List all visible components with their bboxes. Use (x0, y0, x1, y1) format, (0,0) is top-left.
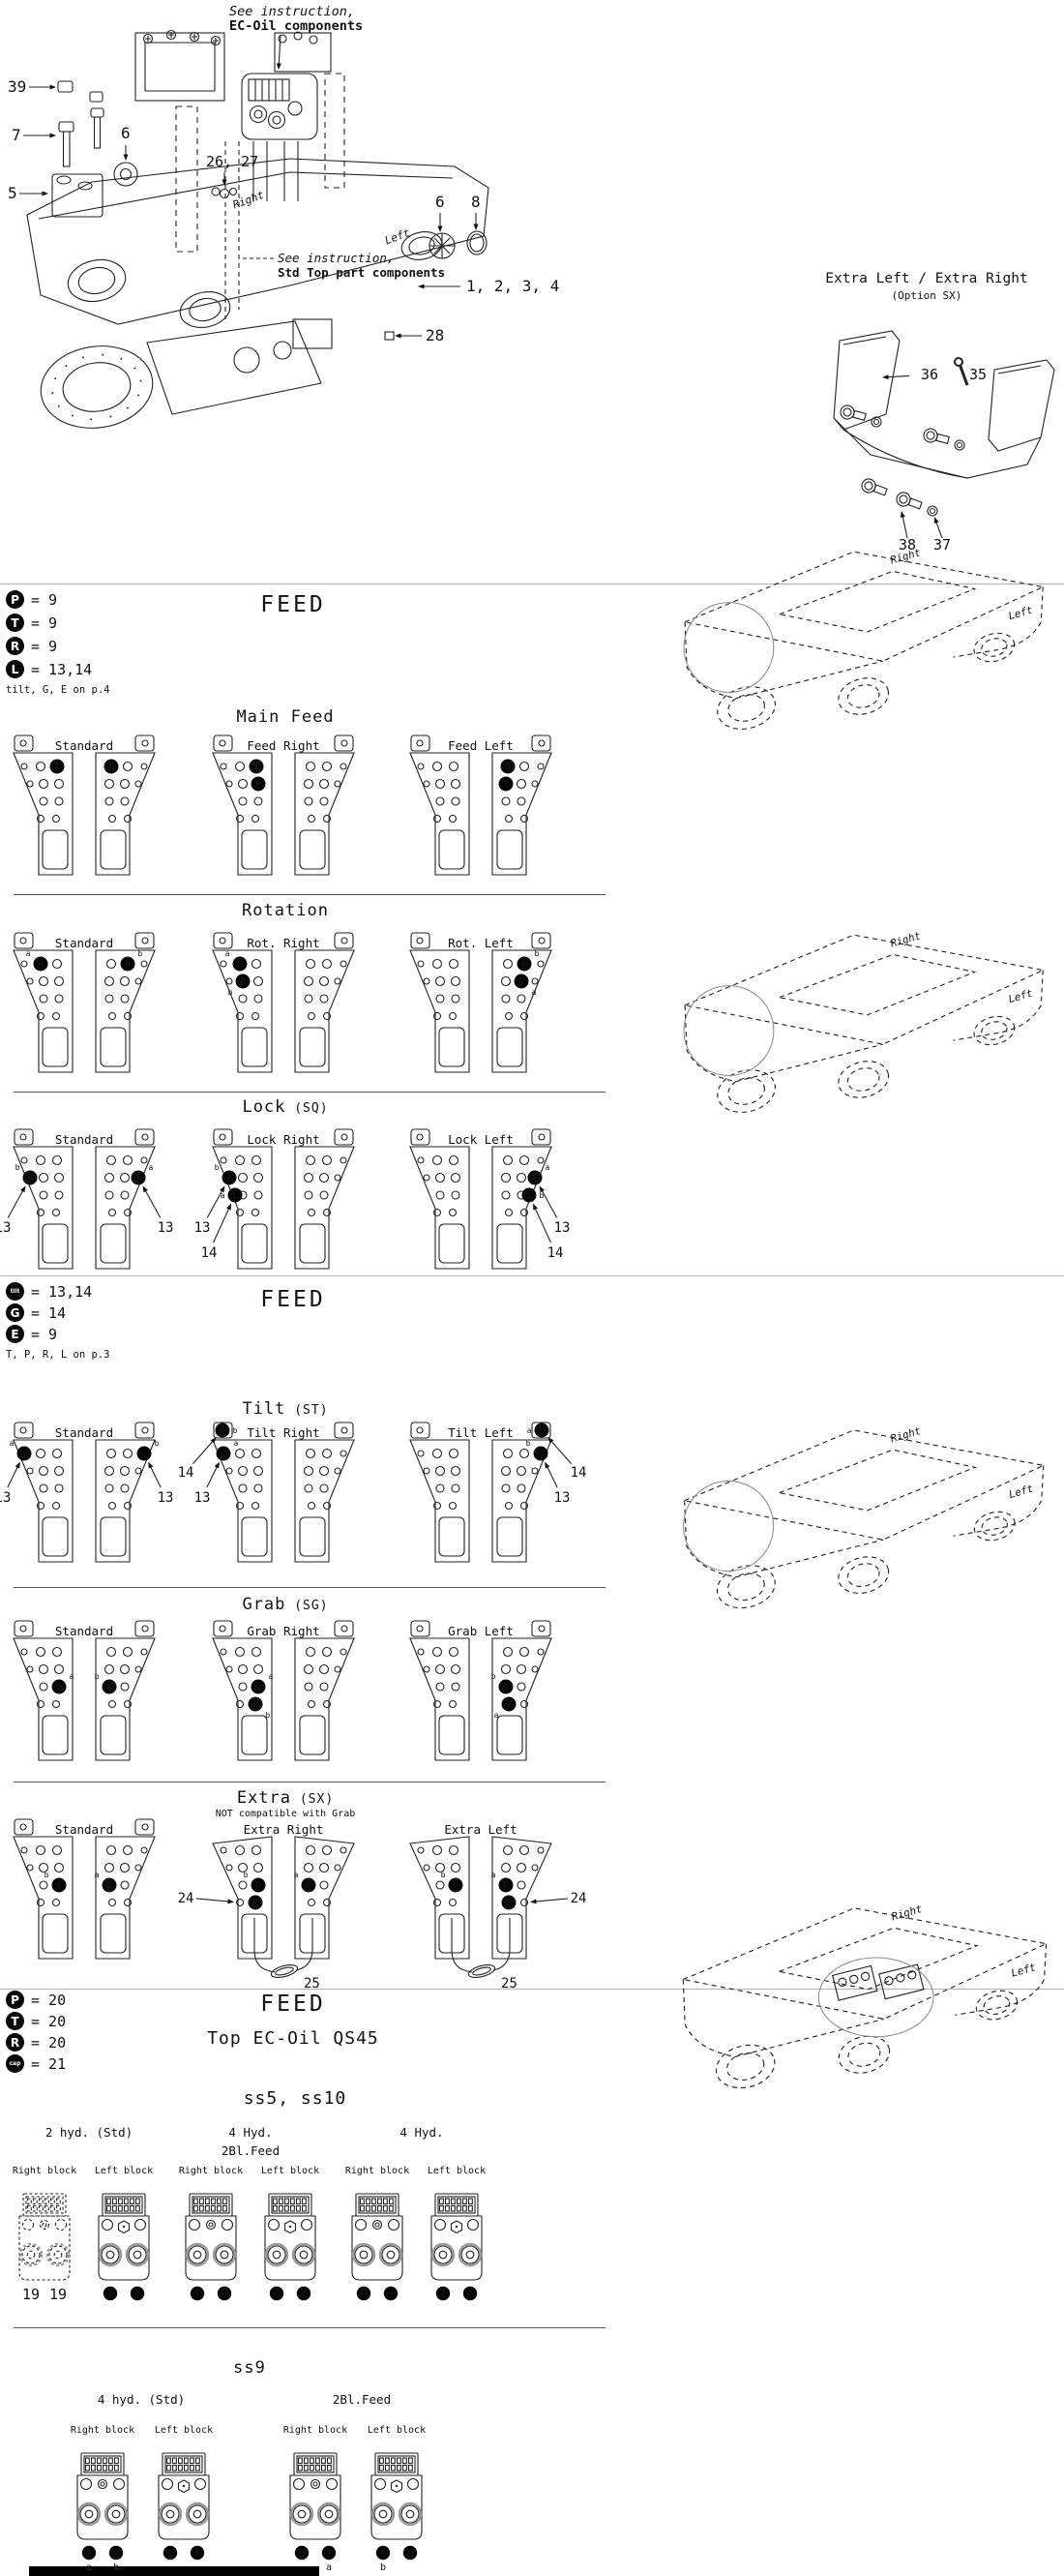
port-hole (40, 1484, 47, 1492)
arrowhead (545, 1462, 549, 1469)
main-port (295, 2246, 312, 2263)
port-hole (504, 1156, 513, 1165)
pin (40, 2199, 44, 2204)
plate-slot (497, 1517, 522, 1556)
block-body (352, 2216, 402, 2280)
tab-hole (142, 938, 148, 944)
main-port-inner (387, 2251, 395, 2259)
main-port-ring (266, 2244, 287, 2265)
right-plate: GbGa (491, 1621, 551, 1760)
pilot-port (114, 2479, 125, 2490)
tab-hole (142, 1134, 148, 1140)
leader-line (150, 1466, 161, 1487)
main-port (102, 2246, 119, 2263)
section-title-mainFeed: Main Feed (0, 707, 571, 727)
pin (179, 2466, 183, 2471)
lug-ring (712, 2039, 780, 2094)
port-sub-label: a (234, 1439, 239, 1448)
port-hole (239, 780, 248, 789)
port-hole (21, 764, 27, 769)
arrowhead (15, 1462, 20, 1469)
pin (409, 2466, 413, 2471)
port-sub-label: b (215, 1163, 220, 1172)
circle (839, 404, 855, 420)
port-hole (418, 961, 424, 967)
port-hole (124, 1648, 133, 1657)
port-hole (141, 1847, 147, 1853)
port-badge-label: P (194, 2549, 199, 2559)
right-plate: La13 (96, 1129, 173, 1269)
frame-outline (845, 1560, 882, 1589)
port-hole (436, 1881, 444, 1889)
washer-inner (874, 420, 879, 425)
port-marker-label: L (232, 1190, 238, 1201)
pin (179, 2458, 183, 2464)
port-hole (305, 1665, 313, 1674)
plate-tab (335, 933, 353, 948)
port-hole (226, 978, 232, 984)
port-hole (124, 1450, 133, 1458)
callout-number: 14 (178, 1465, 194, 1481)
lug-ring (177, 287, 233, 332)
plate-pair: Lb13La14 (200, 1127, 367, 1313)
port-hole (452, 1683, 459, 1691)
port-hole (221, 764, 226, 769)
tab-hole (142, 1626, 148, 1632)
port-hole (323, 1156, 332, 1165)
main-port (434, 2246, 452, 2263)
port-hole (517, 1864, 526, 1872)
port-hole (452, 1174, 460, 1183)
callout-number: 13 (0, 1490, 11, 1506)
port-marker-label: tilt (19, 1452, 30, 1456)
port-hole (53, 1900, 60, 1906)
plate-pair: GaGb (1, 1619, 167, 1805)
port-hole (40, 1467, 48, 1476)
pin (51, 2199, 55, 2204)
port-hole (55, 995, 63, 1003)
port-hole (105, 780, 114, 789)
port-hole (239, 1467, 248, 1476)
arrowhead (50, 85, 57, 90)
plate-tab (214, 933, 232, 948)
port-hole (239, 995, 247, 1003)
port-hole (450, 816, 457, 823)
screw-cross (145, 36, 151, 42)
port-hole (226, 781, 232, 787)
port-marker-label: tilt (537, 1428, 547, 1433)
port-hole (55, 977, 64, 986)
pin (458, 2206, 461, 2212)
port-hole (252, 960, 261, 969)
port-hole (450, 1648, 458, 1657)
arrowhead (277, 63, 281, 70)
plate-pair: EbEaE2425 (398, 1817, 564, 2003)
port-badge-cap: cap (6, 2054, 24, 2073)
port-badge-label: R (113, 2549, 119, 2559)
center-port-inner (43, 2223, 46, 2227)
plate-slot (101, 1517, 126, 1556)
main-port (80, 2505, 98, 2523)
plate-slot (300, 1028, 325, 1066)
left-side-label: Left (1007, 605, 1034, 623)
pin (285, 2199, 289, 2204)
plate-pair: La13Lb14 (398, 1127, 564, 1313)
port-hole (307, 1450, 315, 1458)
lug-ring (64, 255, 129, 307)
pin (458, 2199, 461, 2204)
port-sub-label: b (155, 1439, 160, 1448)
pin (390, 2206, 394, 2212)
pin (206, 2206, 210, 2212)
plate-tab (135, 1621, 154, 1636)
main-port (320, 2505, 338, 2523)
plate-slot (101, 1914, 126, 1953)
plate-pair: RaRb (200, 931, 367, 1117)
port-badge-E: E (6, 1325, 24, 1343)
plate-pair: tilta13tiltb13 (1, 1421, 167, 1606)
port-hole (254, 1665, 263, 1674)
main-port-inner (466, 2251, 474, 2259)
port-hole (55, 1191, 63, 1199)
leader-line (8, 1466, 18, 1487)
left-side-label: Left (1010, 1961, 1037, 1980)
plate-pair: TP (200, 734, 367, 919)
callout-number: 1, 2, 3, 4 (466, 277, 559, 295)
port-marker-label: E (106, 1880, 112, 1891)
block-label: Right block (1, 2166, 88, 2176)
right-plate: EaE24 (491, 1837, 587, 1959)
port-hole (538, 1157, 544, 1163)
left-plate: TP (213, 735, 272, 875)
port-hole (436, 1174, 445, 1183)
port-hole (55, 1864, 64, 1872)
frame-outline (685, 935, 1043, 1044)
port-sub-label: b (113, 2562, 119, 2573)
port-hole (532, 781, 538, 787)
port-hole (107, 960, 116, 969)
block-label: Left block (140, 2425, 227, 2436)
right-plate: Ea (95, 1819, 155, 1959)
port-hole (37, 763, 45, 771)
port-hole (53, 1210, 60, 1216)
plate-slot (497, 1028, 522, 1066)
port-hole (450, 1503, 457, 1510)
tab-hole (341, 1134, 347, 1140)
port-hole (254, 977, 263, 986)
pilot-port (302, 2220, 312, 2231)
section-title-text: Lock (242, 1097, 285, 1117)
callout-number: 37 (933, 536, 951, 554)
port-badge-label: P (407, 2549, 412, 2559)
frame-outline (780, 1450, 975, 1511)
plate-tab (335, 1423, 353, 1438)
arrowhead (901, 511, 905, 518)
legend-p5: P = 20 T = 20 R = 20 cap = 21 (6, 1991, 66, 2076)
pin (107, 2206, 111, 2212)
port-sub-label: a (546, 1163, 550, 1172)
plate-slot (101, 830, 126, 869)
pin (280, 2206, 283, 2212)
main-port-inner (379, 2510, 387, 2518)
bolt-shaft (64, 132, 71, 166)
port-hole (135, 1468, 141, 1474)
port-hole (121, 1665, 130, 1674)
main-port (401, 2505, 419, 2523)
tab-hole (20, 1824, 26, 1830)
frame-illustration: RightLeft (631, 1409, 1061, 1637)
port-sub-label: b (15, 1163, 20, 1172)
port-hole (520, 1450, 529, 1458)
port-hole (436, 780, 445, 789)
arrowhead (474, 225, 479, 231)
washer (928, 506, 937, 516)
plate-tab (411, 933, 429, 948)
port-hole (307, 763, 315, 771)
section-title-text: Rotation (242, 901, 329, 920)
port-hole (141, 961, 147, 967)
guard-edge (998, 366, 1041, 374)
center-port-inner (209, 2223, 213, 2227)
main-port-ring (353, 2244, 374, 2265)
block-hole (57, 176, 71, 184)
port-hole (254, 995, 262, 1003)
pin (194, 2206, 198, 2212)
plate-slot (242, 1028, 267, 1066)
port-hole (105, 995, 113, 1003)
pin (115, 2458, 119, 2464)
port-hole (135, 1666, 141, 1672)
feed-subtitle-p5: Top EC-Oil QS45 (0, 2028, 586, 2049)
port-hole (37, 1450, 45, 1458)
lug-ring (835, 1056, 893, 1102)
arrowhead (438, 226, 443, 233)
port-sub-label: a (95, 1871, 100, 1879)
highlight-ellipse (818, 1958, 933, 2037)
section-title-suffix: (ST) (285, 1403, 328, 1418)
tab-hole (341, 1626, 347, 1632)
arrowhead (418, 285, 425, 289)
port-hole (109, 1701, 116, 1708)
gear-tooth (127, 406, 129, 408)
center-port-inner (375, 2223, 379, 2227)
port-hole (450, 1450, 458, 1458)
port-hole (141, 1157, 147, 1163)
main-port-ring (160, 2503, 181, 2525)
main-port-inner (406, 2510, 414, 2518)
callout-number: 39 (8, 77, 26, 96)
plate-tab (335, 735, 353, 751)
hydraulic-block: TP (155, 2452, 213, 2576)
port-hole (109, 1013, 116, 1020)
port-hole (452, 1191, 459, 1199)
main-port-inner (360, 2251, 368, 2259)
port-hole (320, 1665, 329, 1674)
washer (955, 440, 964, 450)
port-sub-label: b (138, 949, 143, 958)
port-hole (517, 1881, 525, 1889)
port-hole (538, 1847, 544, 1853)
port-hole (532, 978, 538, 984)
port-hole (418, 1649, 424, 1655)
pilot-port (81, 2479, 92, 2490)
plate-slot (439, 1224, 464, 1263)
plate-slot (43, 1028, 68, 1066)
port-hole (124, 1156, 133, 1165)
port-hole (309, 816, 315, 823)
lug-ring (971, 1508, 1018, 1544)
port-hole (254, 1484, 262, 1492)
right-plate: RbRa (492, 933, 551, 1072)
port-hole (40, 1191, 47, 1199)
port-hole (502, 1467, 511, 1476)
port-hole (340, 764, 346, 769)
port-hole (252, 1156, 261, 1165)
plate-tab (135, 1423, 154, 1438)
pin (285, 2206, 289, 2212)
frame-outline (971, 629, 1018, 666)
port-sub-label: b (228, 988, 233, 997)
main-port-inner (112, 2510, 120, 2518)
port-hole (121, 1683, 129, 1691)
ellipse (467, 1962, 496, 1980)
tab-hole (417, 1626, 423, 1632)
port-hole (21, 1649, 27, 1655)
leader-line (542, 1190, 557, 1218)
port-hole (53, 1156, 62, 1165)
circle (922, 427, 938, 443)
frame-outline (973, 1987, 1020, 2023)
port-hole (502, 1174, 511, 1183)
bolt (860, 477, 888, 498)
frame-outline (683, 1979, 884, 2056)
frame-outline (980, 1514, 1009, 1538)
legend-value: = 20 (31, 2013, 66, 2030)
plate-pair: RbRa (398, 931, 564, 1117)
ss510-title: ss5, ss10 (0, 2088, 590, 2109)
port-hole (252, 1210, 259, 1216)
frame-outline (980, 636, 1009, 659)
port-hole (424, 1175, 429, 1181)
plate-slot (439, 1517, 464, 1556)
pin (380, 2458, 384, 2464)
port-hole (418, 1157, 424, 1163)
main-port-inner (273, 2251, 281, 2259)
leader-line (196, 1899, 229, 1902)
port-hole (436, 1665, 445, 1674)
port-marker-label: P (255, 779, 261, 790)
pin (367, 2206, 370, 2212)
frame-outline (845, 681, 882, 710)
port-hole (506, 1503, 513, 1510)
pin (386, 2466, 390, 2471)
port-hole (105, 797, 113, 805)
screw-cross (192, 34, 197, 40)
plate-pair: GbGa (398, 1619, 564, 1805)
pin (384, 2206, 388, 2212)
port-hole (27, 1666, 33, 1672)
pin (92, 2458, 96, 2464)
plate-tab (15, 1423, 33, 1438)
port-badge-label: R (86, 2549, 92, 2559)
bushing (114, 163, 137, 186)
port-marker-label: R (38, 959, 44, 970)
plate-slot (439, 1716, 464, 1754)
port-marker-label: T (253, 762, 259, 772)
port-marker-label: G (56, 1682, 62, 1692)
tab-hole (341, 740, 347, 746)
port-hole (452, 1484, 459, 1492)
gear-tooth (58, 405, 60, 407)
port-sub-label: a (225, 949, 230, 958)
port-hole (502, 977, 511, 986)
port-hole (320, 995, 328, 1003)
port-badge-T: T (6, 2012, 24, 2030)
plate-slot (242, 1716, 267, 1754)
port-hole (27, 781, 33, 787)
block-label: Left block (353, 2425, 440, 2436)
hose-curve (296, 1949, 312, 1970)
left-plate: tilta13 (0, 1423, 73, 1562)
port-hole (450, 763, 458, 771)
main-port (107, 2505, 125, 2523)
main-port-inner (193, 2251, 201, 2259)
port-hole (55, 1174, 64, 1183)
lug-ring (973, 1987, 1020, 2023)
callout-number: 13 (194, 1490, 211, 1506)
extra-option-subtitle: (Option SX) (892, 289, 962, 302)
callout-number: 26, 27 (206, 153, 258, 170)
port-sub-label: b (95, 1672, 100, 1681)
ss510-group-header: 4 Hyd. (349, 2125, 494, 2140)
bolt (895, 491, 923, 512)
legend-row: L = 13,14 (6, 660, 109, 678)
port-badge-label: P (467, 2290, 472, 2299)
callout-number: 25 (304, 1976, 320, 1992)
rect (908, 498, 922, 509)
right-plate (295, 1423, 354, 1562)
port-sub-label: a (149, 1163, 154, 1172)
ec-oil-note: See instruction, (229, 4, 355, 19)
pilot-port (294, 2479, 305, 2490)
arrowhead (530, 1899, 537, 1903)
port-hole (37, 1156, 45, 1165)
plate-tab (335, 1621, 353, 1636)
port-sub-label: b (540, 1191, 545, 1200)
port-hole (452, 1467, 460, 1476)
port-badge-P: P (6, 590, 24, 609)
pin (310, 2466, 314, 2471)
pin (398, 2466, 401, 2471)
port-hole (40, 995, 47, 1003)
port-hole (121, 995, 129, 1003)
port-hole (121, 1484, 129, 1492)
main-port (162, 2505, 179, 2523)
ellipse (177, 287, 233, 332)
port-hole (506, 1210, 513, 1216)
callout-number: 13 (0, 1220, 11, 1236)
port-hole (424, 978, 429, 984)
port-hole (309, 1900, 315, 1906)
tab-hole (20, 938, 26, 944)
plate-tab (135, 933, 154, 948)
port-hole (309, 1701, 315, 1708)
port-hole (53, 960, 62, 969)
left-plate: EbE24 (178, 1837, 272, 1959)
legend-note: T, P, R, L on p.3 (6, 1349, 109, 1361)
circle (884, 1976, 894, 1986)
pin (40, 2206, 44, 2212)
